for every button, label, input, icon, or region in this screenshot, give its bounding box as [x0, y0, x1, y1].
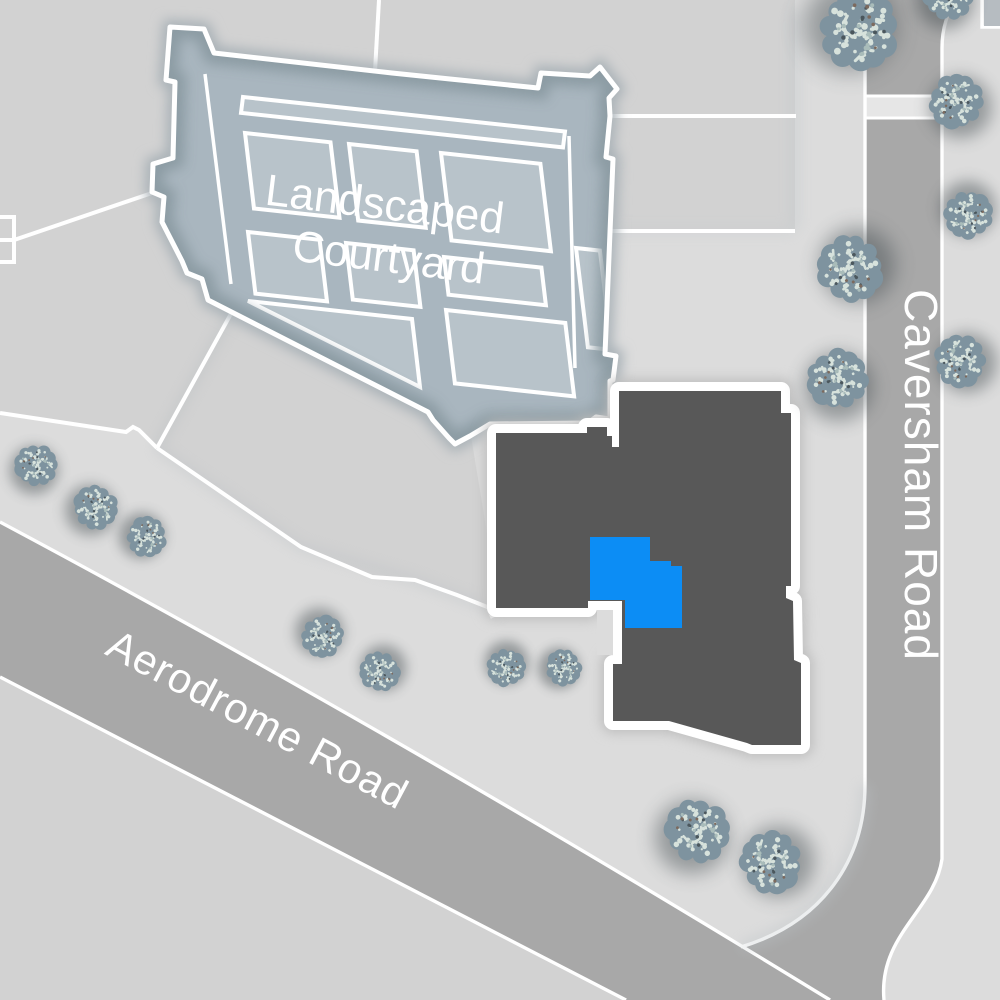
svg-text:Caversham Road: Caversham Road	[895, 289, 947, 661]
